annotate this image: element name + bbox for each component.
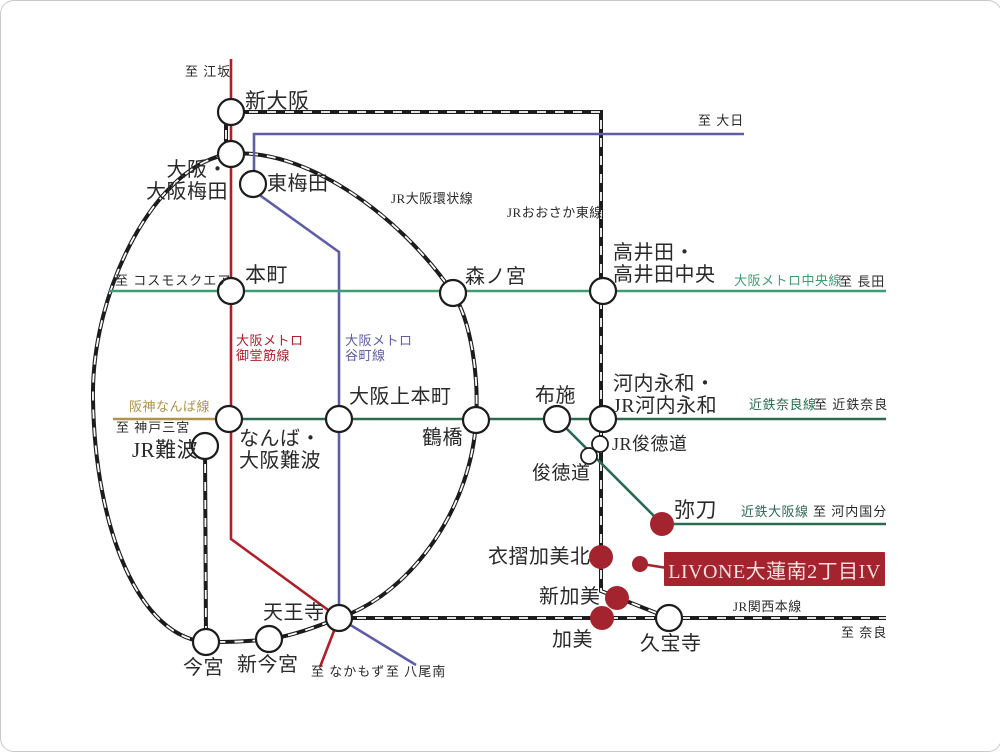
station-marker [440, 280, 466, 306]
station-marker [218, 141, 244, 167]
station-marker [650, 512, 674, 536]
property-location-dot [632, 556, 648, 572]
midosuji-line [231, 59, 339, 667]
station-marker [216, 406, 242, 432]
kintetsu-osaka-line [557, 419, 886, 524]
route-map-canvas [1, 1, 1000, 751]
station-marker [218, 99, 244, 125]
station-marker [590, 406, 616, 432]
property-name-badge: LIVONE大蓮南2丁目IV [664, 552, 885, 586]
station-marker [605, 586, 629, 610]
station-marker [589, 545, 613, 569]
jr-osakahigashi-line [231, 112, 669, 618]
station-marker [326, 605, 352, 631]
station-marker [240, 171, 266, 197]
station-marker [218, 278, 244, 304]
route-map: 新大阪大阪・ 大阪梅田東梅田本町森ノ宮高井田・ 高井田中央なんば・ 大阪難波大阪… [0, 0, 1000, 752]
station-marker [193, 629, 219, 655]
jr-namba-branch-line [205, 446, 206, 642]
station-marker [590, 278, 616, 304]
station-marker [463, 407, 489, 433]
property-callout [632, 556, 667, 572]
jr-osaka-loop-line [93, 153, 477, 642]
station-marker [192, 433, 218, 459]
station-marker [326, 406, 352, 432]
station-marker [656, 605, 682, 631]
station-marker [581, 448, 597, 464]
station-markers [192, 99, 682, 655]
station-marker [590, 606, 614, 630]
station-marker [256, 626, 282, 652]
station-marker [544, 406, 570, 432]
